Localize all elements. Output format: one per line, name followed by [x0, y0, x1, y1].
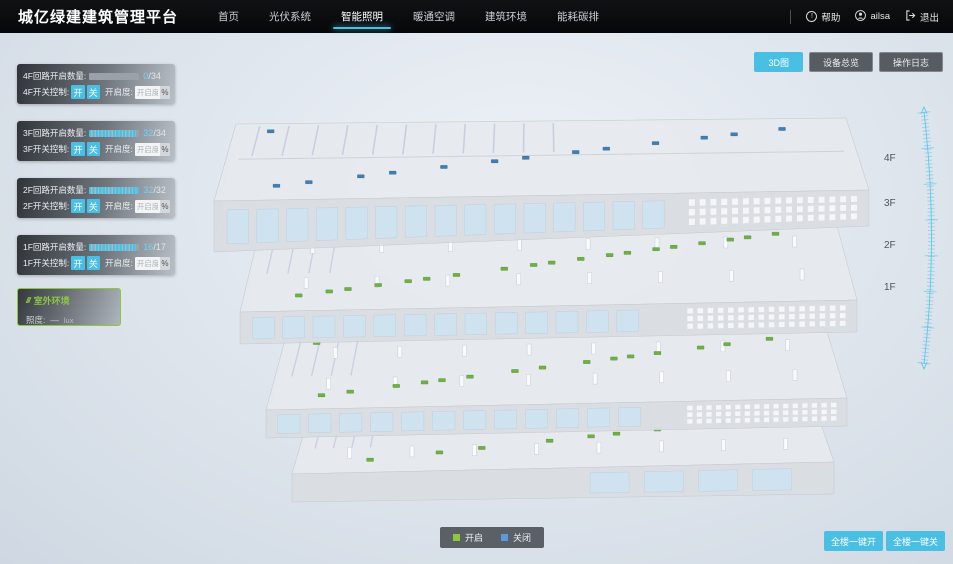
light-marker [701, 136, 708, 139]
switch-on-button[interactable]: 开 [71, 256, 84, 270]
bulk-actions: 全楼一键开 全楼一键关 [824, 531, 945, 551]
floor-panel-3f: 3F回路开启数量: 32/34 3F开关控制: 开 关 开启度: % [17, 121, 175, 161]
dim-unit-button[interactable]: % [160, 143, 170, 156]
dim-level-input[interactable] [135, 200, 160, 213]
dim-unit-button[interactable]: % [160, 86, 170, 99]
light-marker [699, 242, 706, 245]
light-marker [511, 369, 518, 372]
floor-axis-label-4f[interactable]: 4F [884, 153, 896, 164]
all-off-button[interactable]: 全楼一键关 [886, 531, 945, 551]
light-marker [466, 375, 473, 378]
light-marker [697, 346, 704, 349]
light-marker [393, 384, 400, 387]
floor-zoom-ruler[interactable] [921, 107, 932, 369]
legend-on-label: 开启 [465, 531, 483, 544]
user-menu[interactable]: ailsa [855, 10, 890, 24]
nav-item-home[interactable]: 首页 [216, 0, 241, 34]
light-marker [295, 294, 302, 297]
help-button[interactable]: ! 帮助 [806, 10, 840, 24]
circuit-count-value: 32/32 [143, 185, 166, 195]
switch-off-button[interactable]: 关 [87, 85, 100, 99]
device-overview-button[interactable]: 设备总览 [809, 52, 873, 72]
light-marker [583, 360, 590, 363]
light-marker [624, 251, 631, 254]
floor-axis-label-1f[interactable]: 1F [884, 282, 896, 293]
circuit-count-value: 16/17 [143, 242, 166, 252]
dim-level-label: 开启度: [105, 143, 133, 155]
smart-lighting-page: 城亿绿建建筑管理平台 首页 光伏系统 智能照明 暖通空调 建筑环境 能耗碳排 !… [0, 0, 953, 564]
main-nav: 首页 光伏系统 智能照明 暖通空调 建筑环境 能耗碳排 [216, 0, 601, 33]
legend-item-on: 开启 [453, 531, 483, 544]
light-marker [572, 150, 579, 153]
light-marker [539, 366, 546, 369]
switch-off-button[interactable]: 关 [87, 142, 100, 156]
light-marker [588, 435, 595, 438]
dim-level-label: 开启度: [105, 257, 133, 269]
light-marker [347, 390, 354, 393]
circuit-progress-bar [89, 187, 139, 194]
help-label: 帮助 [821, 10, 840, 24]
light-marker [318, 394, 325, 397]
light-marker [501, 267, 508, 270]
dim-level-label: 开启度: [105, 200, 133, 212]
light-marker [421, 381, 428, 384]
switch-control-label: 3F开关控制: [23, 143, 69, 155]
switch-on-button[interactable]: 开 [71, 199, 84, 213]
floor-axis-label-2f[interactable]: 2F [884, 240, 896, 251]
light-marker [367, 458, 374, 461]
logout-button[interactable]: 退出 [905, 10, 939, 24]
light-marker [326, 290, 333, 293]
dim-unit-button[interactable]: % [160, 200, 170, 213]
floor-axis-label-3f[interactable]: 3F [884, 198, 896, 209]
switch-off-button[interactable]: 关 [87, 256, 100, 270]
circuit-count-label: 3F回路开启数量: [23, 127, 86, 139]
dim-level-input[interactable] [135, 143, 160, 156]
switch-on-button[interactable]: 开 [71, 85, 84, 99]
light-marker [530, 263, 537, 266]
switch-on-button[interactable]: 开 [71, 142, 84, 156]
view-3d-button[interactable]: 3D图 [754, 52, 803, 72]
vertical-divider [790, 10, 791, 24]
outdoor-env-panel: /// 室外环境 照度: — lux [17, 288, 121, 326]
circuit-progress-bar [89, 73, 139, 80]
light-marker [344, 287, 351, 290]
light-marker [491, 160, 498, 163]
circuit-count-label: 2F回路开启数量: [23, 184, 86, 196]
nav-item-hvac[interactable]: 暖通空调 [411, 0, 457, 34]
legend-on-swatch [453, 534, 460, 541]
circuit-count-value: 32/34 [143, 128, 166, 138]
top-right-actions: ! 帮助 ailsa 退出 [790, 10, 939, 24]
light-marker [405, 280, 412, 283]
light-marker [548, 261, 555, 264]
nav-item-pv-system[interactable]: 光伏系统 [267, 0, 313, 34]
dim-level-input[interactable] [135, 257, 160, 270]
light-marker [772, 232, 779, 235]
light-marker [423, 277, 430, 280]
light-marker [610, 357, 617, 360]
light-marker [652, 141, 659, 144]
illuminance-label: 照度: [26, 314, 45, 326]
outdoor-env-icon: /// [26, 296, 30, 305]
circuit-count-value: 0/34 [143, 71, 161, 81]
light-marker [727, 238, 734, 241]
all-on-button[interactable]: 全楼一键开 [824, 531, 883, 551]
nav-item-energy-carbon[interactable]: 能耗碳排 [555, 0, 601, 34]
illuminance-value: — [50, 315, 59, 325]
light-marker [744, 236, 751, 239]
dim-level-input[interactable] [135, 86, 160, 99]
floor-panel-4f: 4F回路开启数量: 0/34 4F开关控制: 开 关 开启度: % [17, 64, 175, 104]
switch-control-label: 4F开关控制: [23, 86, 69, 98]
circuit-count-label: 1F回路开启数量: [23, 241, 86, 253]
logout-label: 退出 [920, 10, 939, 24]
nav-item-smart-lighting[interactable]: 智能照明 [339, 0, 385, 34]
floor-panel-1f: 1F回路开启数量: 16/17 1F开关控制: 开 关 开启度: % [17, 235, 175, 275]
light-marker [267, 130, 274, 133]
legend-off-label: 关闭 [513, 531, 531, 544]
circuit-count-label: 4F回路开启数量: [23, 70, 86, 82]
illuminance-unit: lux [64, 316, 74, 325]
light-marker [389, 171, 396, 174]
floor-3d-2f[interactable] [266, 328, 847, 438]
switch-control-label: 1F开关控制: [23, 257, 69, 269]
logout-icon [905, 10, 916, 24]
light-marker [606, 253, 613, 256]
switch-control-label: 2F开关控制: [23, 200, 69, 212]
circuit-progress-bar [89, 130, 139, 137]
light-marker [436, 451, 443, 454]
light-marker [478, 446, 485, 449]
light-marker [522, 156, 529, 159]
dim-level-label: 开启度: [105, 86, 133, 98]
light-marker [357, 175, 364, 178]
floor-panel-2f: 2F回路开启数量: 32/32 2F开关控制: 开 关 开启度: % [17, 178, 175, 218]
light-marker [779, 127, 786, 130]
outdoor-env-title: 室外环境 [34, 294, 70, 307]
dim-unit-button[interactable]: % [160, 257, 170, 270]
light-marker [670, 245, 677, 248]
help-icon: ! [806, 11, 817, 22]
light-marker [440, 165, 447, 168]
light-marker [375, 283, 382, 286]
avatar-icon [855, 10, 866, 24]
light-marker [438, 378, 445, 381]
light-marker [305, 180, 312, 183]
operation-log-button[interactable]: 操作日志 [879, 52, 943, 72]
light-marker [654, 351, 661, 354]
light-marker [731, 133, 738, 136]
light-marker [453, 273, 460, 276]
light-marker [724, 343, 731, 346]
top-navigation-bar: 城亿绿建建筑管理平台 首页 光伏系统 智能照明 暖通空调 建筑环境 能耗碳排 !… [0, 0, 953, 33]
legend-item-off: 关闭 [501, 531, 531, 544]
light-marker [766, 337, 773, 340]
light-marker [577, 257, 584, 260]
lighting-status-legend: 开启 关闭 [440, 527, 544, 548]
light-marker [613, 432, 620, 435]
view-toolbar: 3D图 设备总览 操作日志 [754, 52, 943, 72]
circuit-progress-bar [89, 244, 139, 251]
light-marker [627, 355, 634, 358]
legend-off-swatch [501, 534, 508, 541]
switch-off-button[interactable]: 关 [87, 199, 100, 213]
nav-item-building-env[interactable]: 建筑环境 [483, 0, 529, 34]
light-marker [603, 147, 610, 150]
user-name: ailsa [870, 11, 890, 22]
light-marker [273, 184, 280, 187]
app-title: 城亿绿建建筑管理平台 [18, 6, 178, 27]
light-marker [653, 247, 660, 250]
light-marker [546, 439, 553, 442]
